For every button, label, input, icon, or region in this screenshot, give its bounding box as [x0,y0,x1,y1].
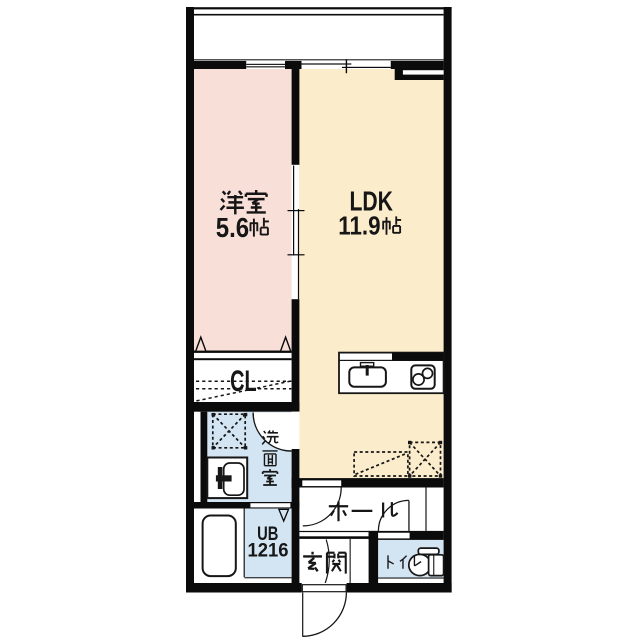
svg-text:1216: 1216 [248,539,289,560]
svg-text:5.6: 5.6 [216,213,249,243]
svg-text:11.9: 11.9 [338,212,380,241]
svg-text:CL: CL [230,365,257,398]
